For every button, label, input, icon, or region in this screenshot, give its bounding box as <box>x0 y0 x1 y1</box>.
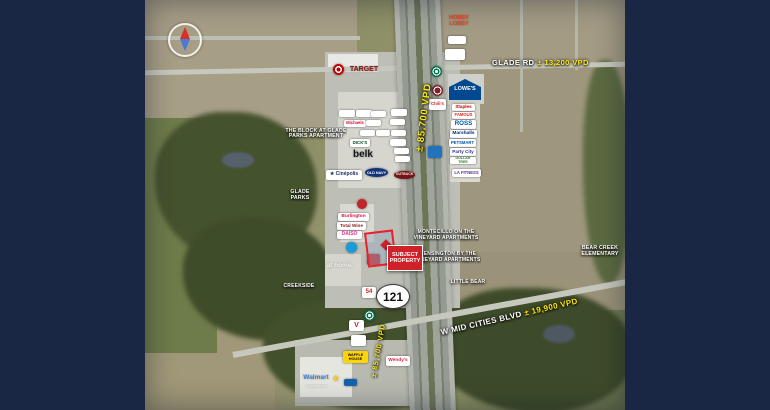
creekside-label: CREEKSIDE <box>276 283 322 291</box>
left-navy-panel <box>0 0 145 410</box>
subject-property-callout: SUBJECT PROPERTY <box>387 245 423 271</box>
glade-rd-count: ± 13,200 VPD <box>537 58 588 67</box>
aerial-marketing-map: TARGETHOBBY LOBBYChili'sLOWE'SStaplesFAM… <box>0 0 770 410</box>
right-navy-panel <box>625 0 770 410</box>
glade-rd-label: GLADE RD ± 13,200 VPD <box>492 58 589 67</box>
glade-parks-label: GLADE PARKS <box>286 189 314 202</box>
highway-121-shield: 121 <box>376 284 410 309</box>
glade-rd-name: GLADE RD <box>492 58 534 67</box>
kensington-apartments-label: KENSINGTON BY THE VINEYARD APARTMENTS <box>415 251 481 264</box>
montecillo-apartments-label: MONTECILLO ON THE VINEYARD APARTMENTS <box>413 229 479 242</box>
bear-creek-elementary-label: BEAR CREEK ELEMENTARY <box>577 245 623 258</box>
little-bear-label: LITTLE BEAR <box>447 279 489 287</box>
the-block-at-glade-parks-label: THE BLOCK AT GLADE PARKS APARTMENT <box>285 127 347 141</box>
